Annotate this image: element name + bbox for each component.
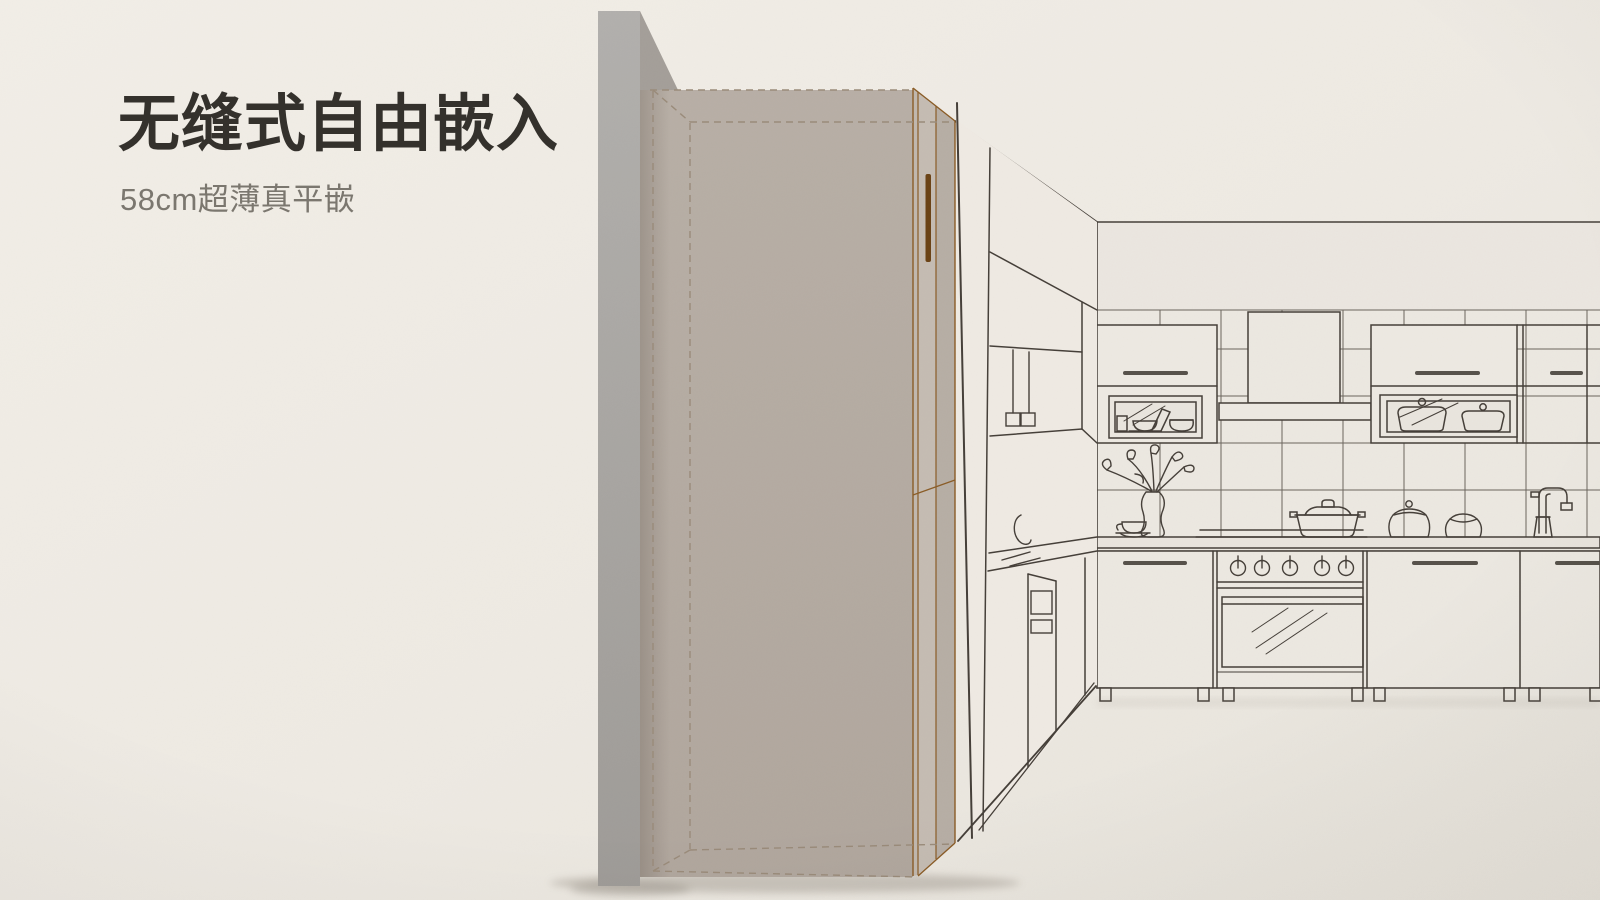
headline: 无缝式自由嵌入 58cm超薄真平嵌 xyxy=(118,88,559,217)
banner: 无缝式自由嵌入 58cm超薄真平嵌 xyxy=(0,0,1600,900)
page-subtitle: 58cm超薄真平嵌 xyxy=(120,183,559,217)
page-title: 无缝式自由嵌入 xyxy=(118,88,559,161)
